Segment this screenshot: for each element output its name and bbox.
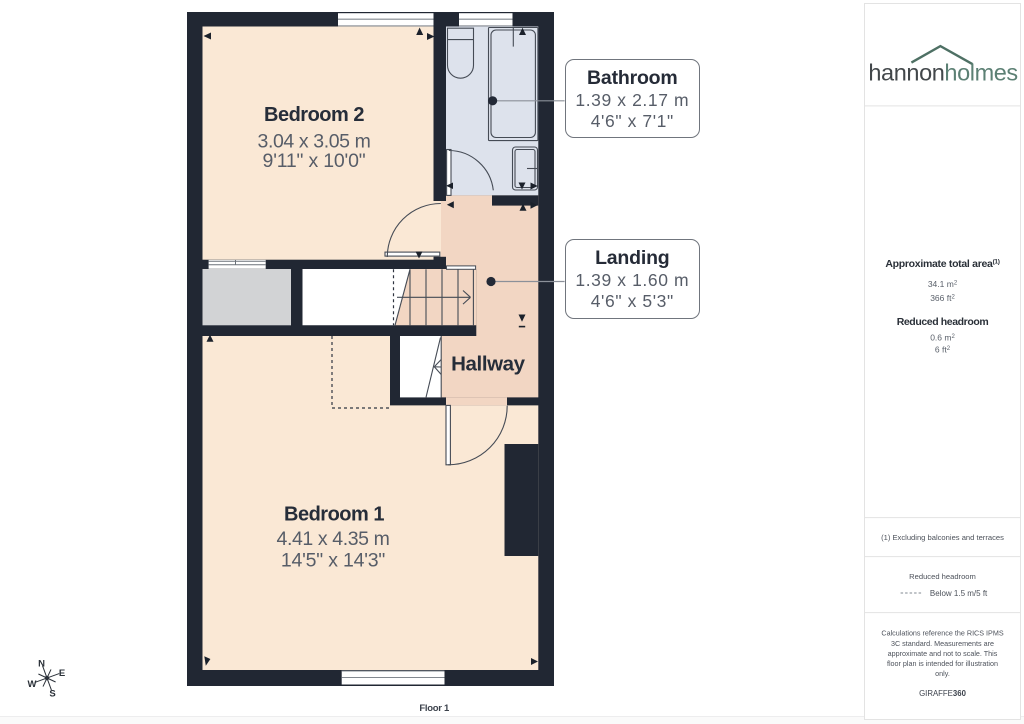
svg-text:Reduced headroom: Reduced headroom — [909, 572, 976, 581]
svg-text:approximate and not to scale.: approximate and not to scale. This — [887, 649, 997, 658]
svg-text:Calculations reference the RIC: Calculations reference the RICS IPMS — [881, 629, 1003, 638]
svg-text:366 ft2: 366 ft2 — [930, 293, 955, 303]
svg-text:S: S — [49, 688, 55, 699]
svg-text:0.6 m2: 0.6 m2 — [930, 333, 955, 343]
svg-text:4.41 x 4.35 m: 4.41 x 4.35 m — [277, 528, 390, 550]
svg-text:34.1 m2: 34.1 m2 — [927, 279, 957, 289]
svg-text:Bedroom 2: Bedroom 2 — [264, 104, 364, 126]
svg-text:Bedroom 1: Bedroom 1 — [284, 504, 384, 526]
svg-text:Hallway: Hallway — [451, 352, 526, 375]
svg-text:14'5" x 14'3": 14'5" x 14'3" — [281, 550, 386, 572]
svg-text:Reduced headroom: Reduced headroom — [896, 316, 988, 328]
svg-text:only.: only. — [935, 669, 950, 678]
svg-text:6 ft2: 6 ft2 — [935, 345, 951, 355]
svg-text:Approximate total area(1): Approximate total area(1) — [885, 258, 999, 270]
svg-text:hannonholmes: hannonholmes — [868, 60, 1017, 86]
svg-text:9'11" x 10'0": 9'11" x 10'0" — [263, 150, 366, 172]
svg-text:W: W — [28, 679, 37, 690]
svg-text:Below 1.5 m/5 ft: Below 1.5 m/5 ft — [930, 589, 988, 598]
svg-text:GIRAFFE360: GIRAFFE360 — [919, 689, 966, 698]
svg-text:E: E — [59, 668, 65, 679]
svg-text:N: N — [38, 658, 45, 669]
svg-text:floor plan is intended for ill: floor plan is intended for illustration — [887, 659, 998, 668]
svg-text:(1) Excluding balconies and te: (1) Excluding balconies and terraces — [881, 533, 1004, 542]
svg-text:Floor 1: Floor 1 — [419, 703, 450, 714]
svg-text:3C standard. Measurements are: 3C standard. Measurements are — [891, 639, 994, 648]
